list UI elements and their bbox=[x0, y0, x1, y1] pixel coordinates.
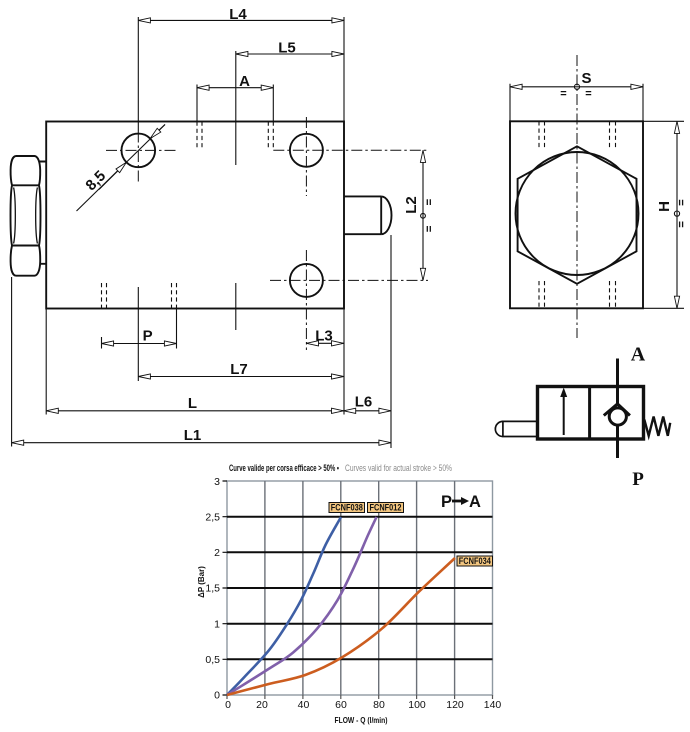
svg-text:L6: L6 bbox=[355, 394, 373, 411]
svg-text:100: 100 bbox=[408, 699, 426, 711]
svg-text:L3: L3 bbox=[315, 328, 333, 345]
svg-text:ΔP (Bar): ΔP (Bar) bbox=[197, 566, 206, 598]
svg-text:H: H bbox=[656, 201, 673, 212]
svg-text:0: 0 bbox=[225, 699, 231, 711]
svg-text:140: 140 bbox=[484, 699, 502, 711]
svg-text:L1: L1 bbox=[184, 427, 202, 444]
svg-text:40: 40 bbox=[298, 699, 310, 711]
svg-text:Curve valide per corsa efficac: Curve valide per corsa efficace > 50% • bbox=[229, 463, 339, 474]
svg-text:20: 20 bbox=[256, 699, 268, 711]
svg-text:=: = bbox=[585, 88, 591, 100]
svg-text:0,5: 0,5 bbox=[205, 654, 220, 666]
svg-text:S: S bbox=[581, 70, 591, 87]
svg-text:P: P bbox=[441, 493, 452, 511]
svg-text:Curves valid for actual stroke: Curves valid for actual stroke > 50% bbox=[345, 463, 452, 474]
svg-text:L5: L5 bbox=[278, 40, 296, 57]
svg-text:80: 80 bbox=[373, 699, 385, 711]
svg-text:2: 2 bbox=[214, 547, 220, 559]
svg-text:L7: L7 bbox=[230, 361, 248, 378]
svg-text:0: 0 bbox=[214, 690, 220, 702]
svg-text:A: A bbox=[631, 344, 646, 366]
svg-text:L4: L4 bbox=[229, 6, 247, 23]
svg-text:FCNF012: FCNF012 bbox=[370, 503, 402, 513]
svg-text:P: P bbox=[632, 469, 644, 490]
svg-text:A: A bbox=[469, 493, 481, 511]
svg-text:3: 3 bbox=[214, 476, 220, 488]
svg-text:L2: L2 bbox=[403, 196, 420, 214]
svg-text:FLOW - Q (l/min): FLOW - Q (l/min) bbox=[335, 715, 388, 725]
svg-text:120: 120 bbox=[446, 699, 464, 711]
svg-text:P: P bbox=[143, 328, 153, 345]
svg-text:60: 60 bbox=[335, 699, 347, 711]
svg-text:2,5: 2,5 bbox=[205, 512, 220, 524]
svg-text:A: A bbox=[239, 73, 250, 90]
svg-text:L: L bbox=[188, 395, 197, 412]
svg-text:=: = bbox=[560, 88, 566, 100]
svg-text:1: 1 bbox=[214, 618, 220, 630]
svg-text:FCNF034: FCNF034 bbox=[459, 556, 491, 566]
svg-text:1,5: 1,5 bbox=[205, 583, 220, 595]
svg-text:FCNF038: FCNF038 bbox=[331, 503, 363, 513]
